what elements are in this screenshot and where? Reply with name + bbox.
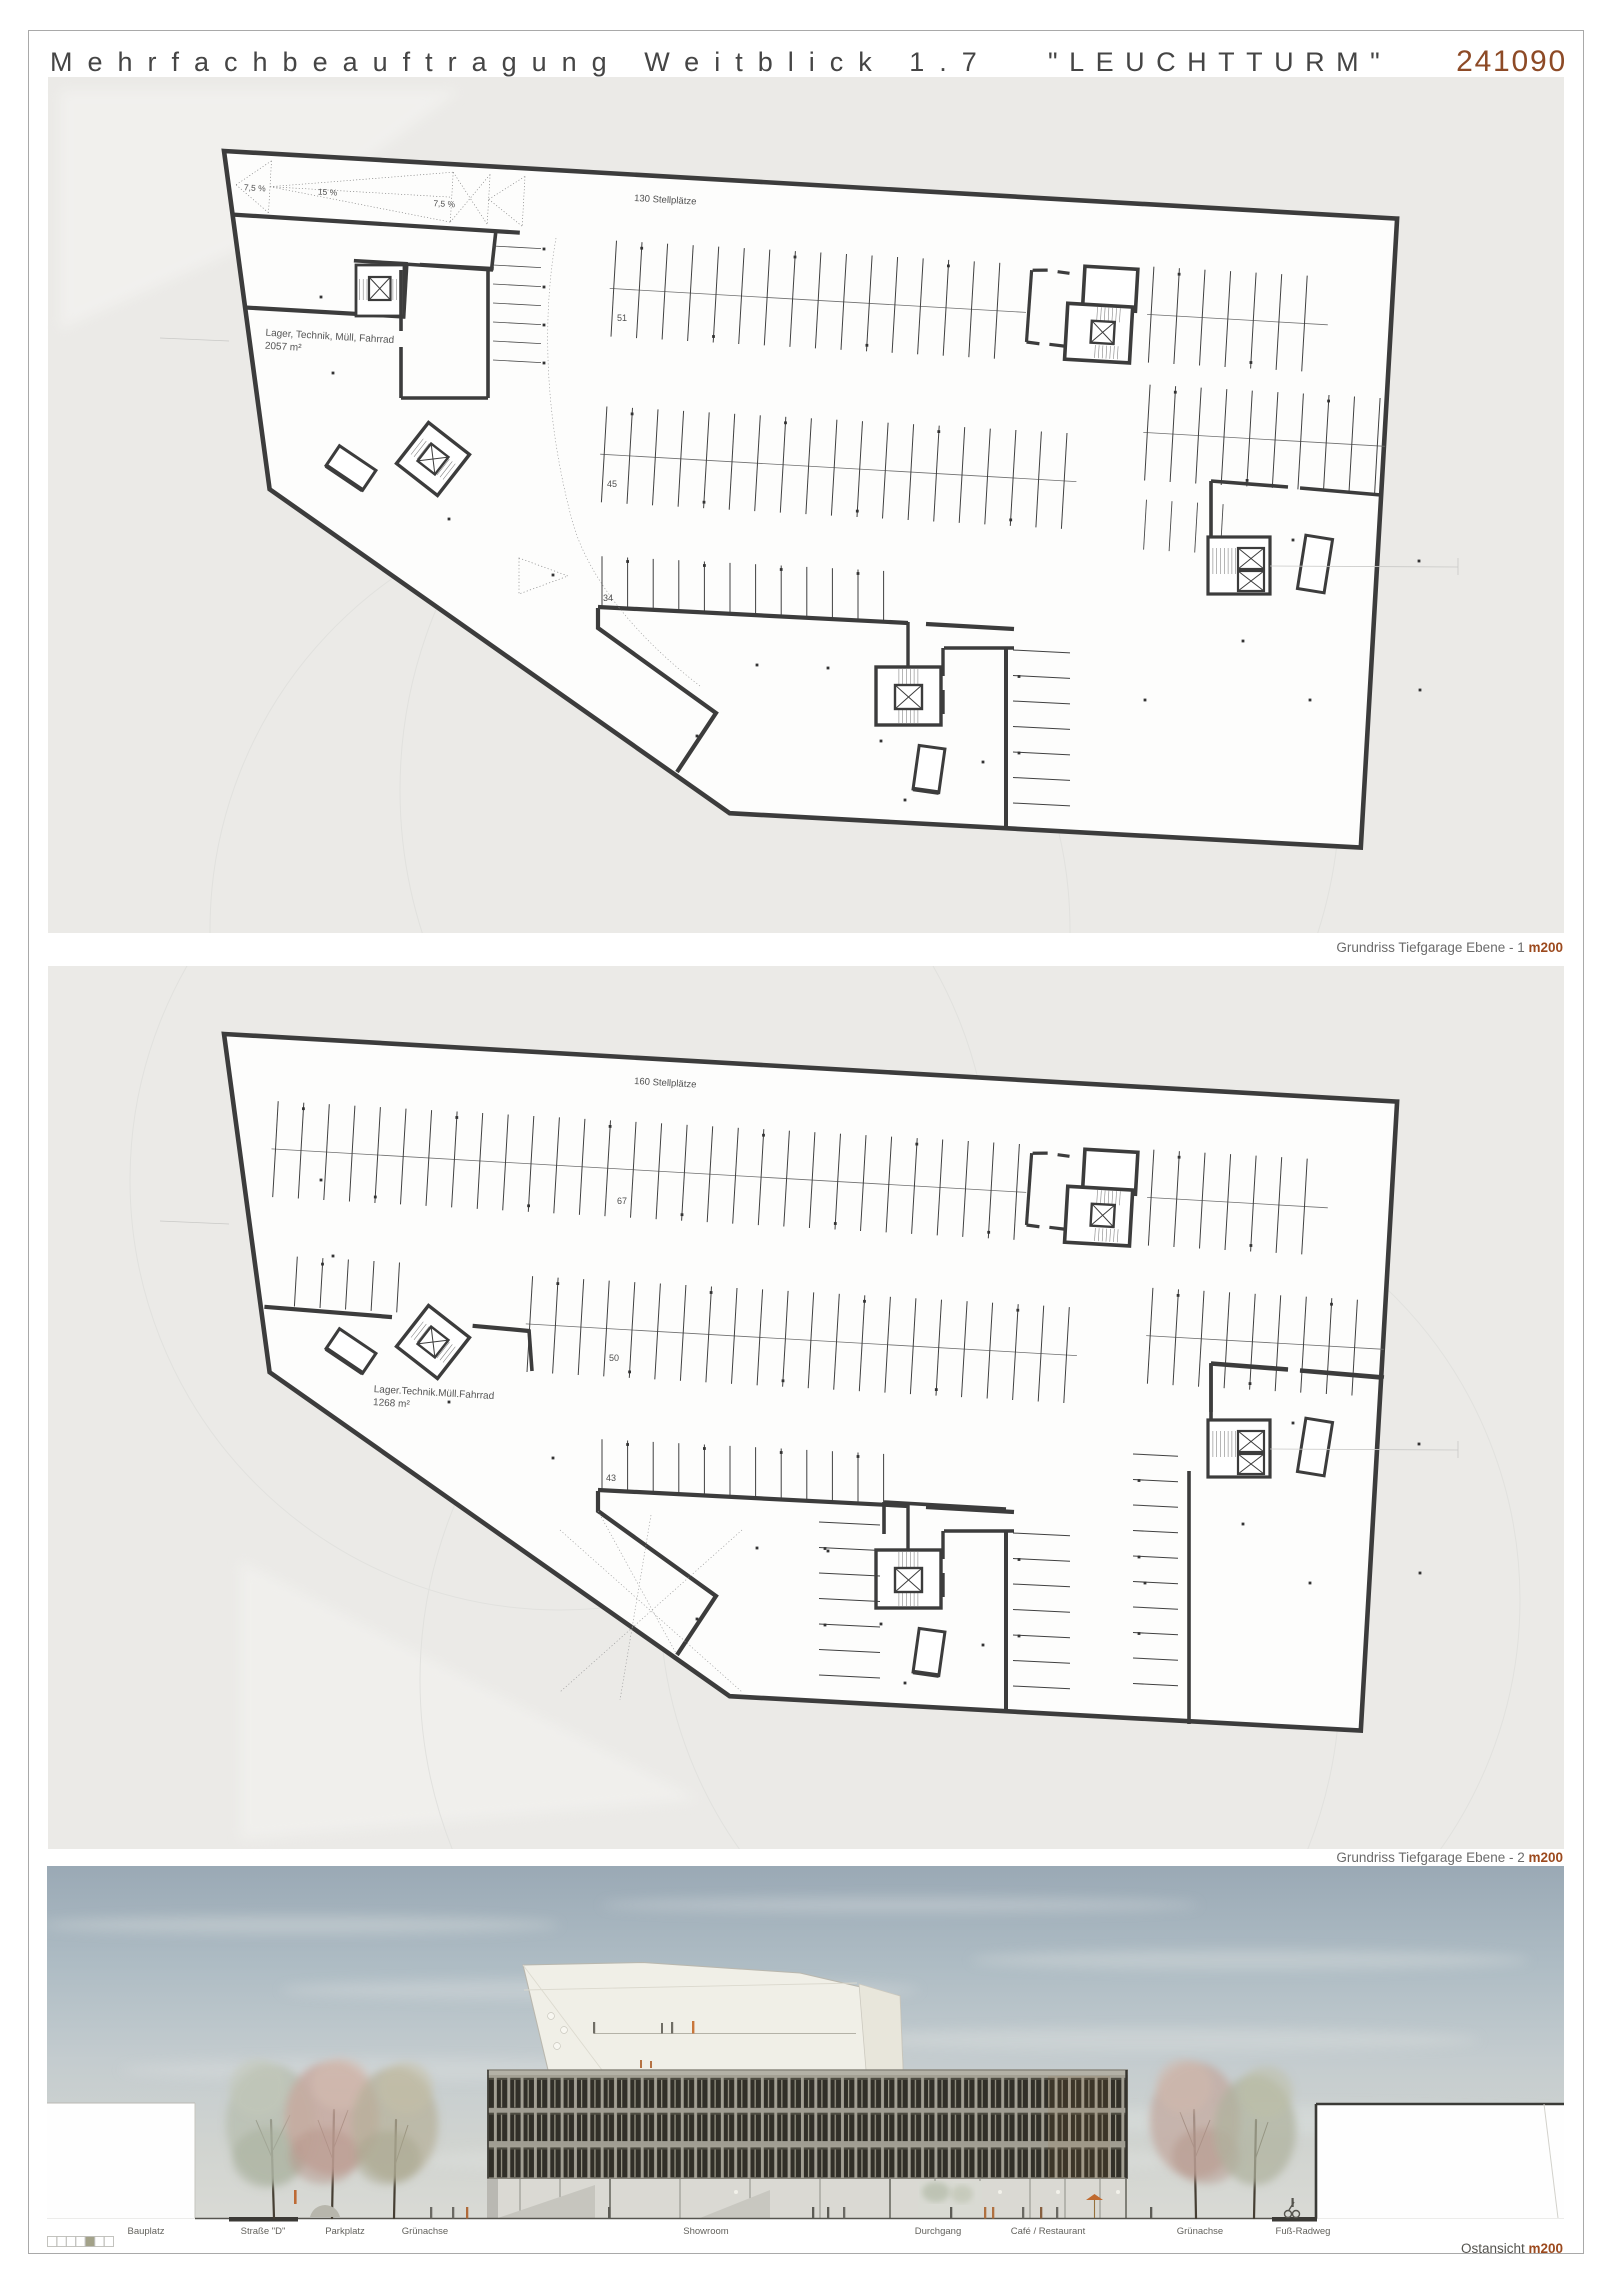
svg-text:Grundriss Tiefgarage Ebene - 2: Grundriss Tiefgarage Ebene - 2 m200 xyxy=(1336,1850,1563,1865)
svg-text:51: 51 xyxy=(617,313,627,323)
svg-text:Showroom: Showroom xyxy=(683,2226,728,2237)
svg-text:Bauplatz: Bauplatz xyxy=(128,2226,165,2237)
svg-text:Parkplatz: Parkplatz xyxy=(325,2226,365,2237)
svg-text:Fuß-Radweg: Fuß-Radweg xyxy=(1276,2226,1331,2237)
svg-text:34: 34 xyxy=(603,593,613,603)
svg-text:50: 50 xyxy=(609,1353,619,1363)
svg-text:Durchgang: Durchgang xyxy=(915,2226,961,2237)
svg-text:2057 m²: 2057 m² xyxy=(265,341,303,354)
svg-text:67: 67 xyxy=(617,1196,627,1206)
svg-text:7,5 %: 7,5 % xyxy=(244,182,267,193)
svg-text:15 %: 15 % xyxy=(318,187,338,198)
svg-text:"LEUCHTTURM": "LEUCHTTURM" xyxy=(1048,47,1391,77)
svg-text:Café / Restaurant: Café / Restaurant xyxy=(1011,2226,1086,2237)
svg-text:Ostansicht m200: Ostansicht m200 xyxy=(1461,2241,1563,2256)
svg-text:Grundriss Tiefgarage Ebene - 1: Grundriss Tiefgarage Ebene - 1 m200 xyxy=(1336,940,1563,955)
svg-text:45: 45 xyxy=(607,479,617,489)
svg-text:Mehrfachbeauftragung Weitblick: Mehrfachbeauftragung Weitblick 1.7 xyxy=(50,47,992,77)
svg-text:Grünachse: Grünachse xyxy=(1177,2226,1223,2237)
svg-text:43: 43 xyxy=(606,1473,616,1483)
svg-text:241090: 241090 xyxy=(1456,45,1567,78)
svg-text:Straße "D": Straße "D" xyxy=(241,2226,286,2237)
svg-text:7,5 %: 7,5 % xyxy=(433,198,456,209)
svg-text:1268 m²: 1268 m² xyxy=(373,1397,411,1410)
svg-text:Grünachse: Grünachse xyxy=(402,2226,448,2237)
